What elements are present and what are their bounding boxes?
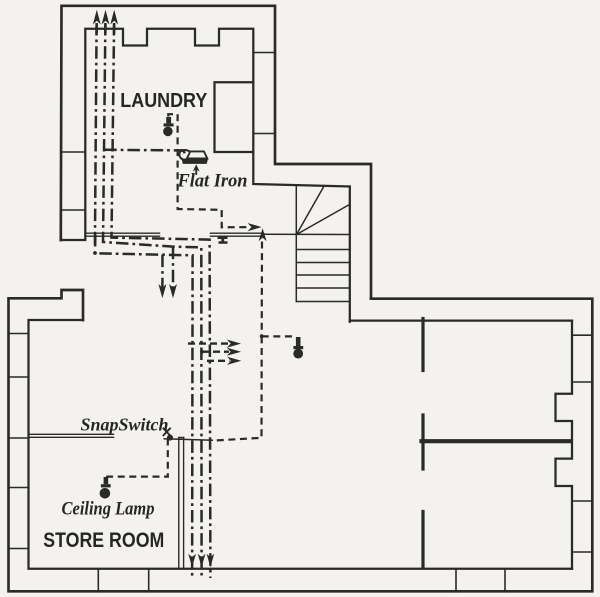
svg-text:STORE ROOM: STORE ROOM xyxy=(43,528,164,552)
svg-text:LAUNDRY: LAUNDRY xyxy=(120,90,208,112)
svg-text:Flat Iron: Flat Iron xyxy=(177,171,248,192)
svg-text:SnapSwitch: SnapSwitch xyxy=(81,415,169,435)
svg-text:Ceiling Lamp: Ceiling Lamp xyxy=(62,499,155,520)
